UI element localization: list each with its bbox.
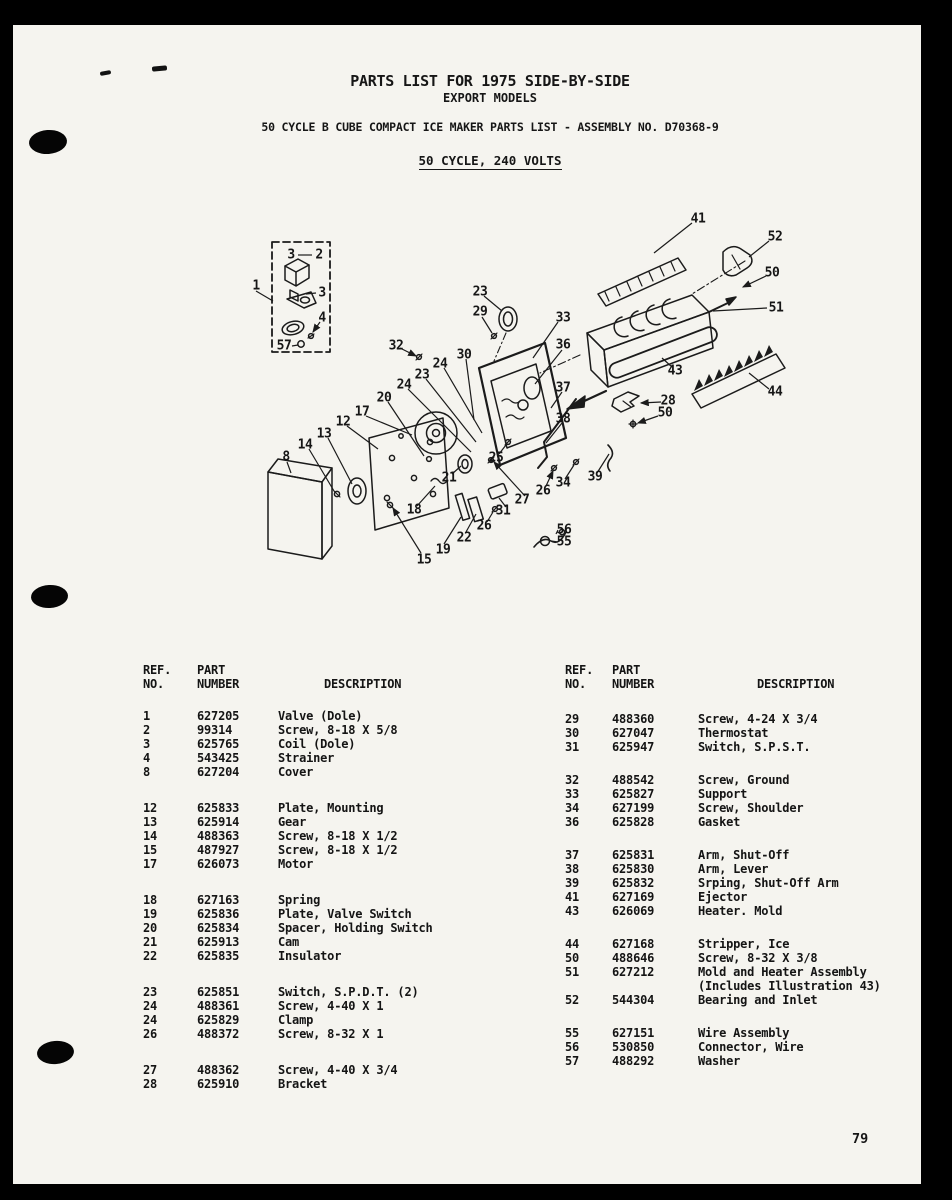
- table-group: 1627205Valve (Dole)299314Screw, 8-18 X 5…: [143, 709, 433, 779]
- table-row: 4543425Strainer: [143, 751, 433, 765]
- part-description: (Includes Illustration 43): [698, 979, 881, 993]
- ref-no: 12: [143, 801, 197, 815]
- diagram-callout-50: 50: [658, 406, 673, 421]
- col-header-description: DESCRIPTION: [698, 677, 834, 691]
- col-header-ref: REF.: [565, 663, 612, 677]
- diagram-callout-20: 20: [377, 391, 392, 406]
- part-number: 488361: [197, 999, 278, 1013]
- part-description: Wire Assembly: [698, 1026, 789, 1040]
- page-title: PARTS LIST FOR 1975 SIDE-BY-SIDE: [28, 72, 952, 91]
- part-number: 627199: [612, 801, 698, 815]
- ref-no: 3: [143, 737, 197, 751]
- table-row: 31625947Switch, S.P.S.T.: [565, 740, 881, 754]
- diagram-callout-3: 3: [318, 286, 325, 301]
- part-number: 625828: [612, 815, 698, 829]
- part-number: 488646: [612, 951, 698, 965]
- table-row: 39625832Srping, Shut-Off Arm: [565, 876, 881, 890]
- table-row: 12625833Plate, Mounting: [143, 801, 433, 815]
- table-row: 18627163Spring: [143, 893, 433, 907]
- part-description: Plate, Valve Switch: [278, 907, 411, 921]
- part-number: 488372: [197, 1027, 278, 1041]
- table-row: 23625851Switch, S.P.D.T. (2): [143, 985, 433, 999]
- scan-border-right: [921, 0, 952, 1200]
- part-number: 488363: [197, 829, 278, 843]
- ref-no: 29: [565, 712, 612, 726]
- table-group: 44627168Stripper, Ice50488646Screw, 8-32…: [565, 937, 881, 1007]
- table-row: 36625828Gasket: [565, 815, 881, 829]
- part-number: 625830: [612, 862, 698, 876]
- part-description: Screw, Shoulder: [698, 801, 803, 815]
- part-number: 625836: [197, 907, 278, 921]
- ref-no: 21: [143, 935, 197, 949]
- table-row: 14488363Screw, 8-18 X 1/2: [143, 829, 433, 843]
- col-header-no: NO.: [565, 677, 612, 691]
- part-description: Screw, 8-18 X 1/2: [278, 843, 397, 857]
- part-description: Connector, Wire: [698, 1040, 803, 1054]
- part-number: 627205: [197, 709, 278, 723]
- part-description: Stripper, Ice: [698, 937, 789, 951]
- ref-no: 41: [565, 890, 612, 904]
- diagram-callout-25: 25: [489, 451, 504, 466]
- diagram-callout-50: 50: [765, 266, 780, 281]
- diagram-callout-24: 24: [433, 357, 448, 372]
- ref-no: 39: [565, 876, 612, 890]
- col-header-ref: REF.: [143, 663, 197, 677]
- diagram-callout-1: 1: [252, 279, 260, 294]
- part-description: Coil (Dole): [278, 737, 355, 751]
- part-number: 99314: [197, 723, 278, 737]
- part-description: Switch, S.P.S.T.: [698, 740, 810, 754]
- part-number: 627163: [197, 893, 278, 907]
- table-group: 32488542Screw, Ground33625827Support3462…: [565, 773, 881, 829]
- ref-no: 50: [565, 951, 612, 965]
- part-description: Washer: [698, 1054, 740, 1068]
- table-group: 18627163Spring19625836Plate, Valve Switc…: [143, 893, 433, 963]
- table-group: 27488362Screw, 4-40 X 3/428625910Bracket: [143, 1063, 433, 1091]
- part-number: 627047: [612, 726, 698, 740]
- voltage-line: 50 CYCLE, 240 VOLTS: [419, 153, 562, 170]
- ref-no: 15: [143, 843, 197, 857]
- part-number: 625947: [612, 740, 698, 754]
- title-block: PARTS LIST FOR 1975 SIDE-BY-SIDE EXPORT …: [28, 72, 952, 170]
- table-row: 32488542Screw, Ground: [565, 773, 881, 787]
- part-description: Cam: [278, 935, 299, 949]
- part-number: 488360: [612, 712, 698, 726]
- part-description: Plate, Mounting: [278, 801, 383, 815]
- ref-no: 55: [565, 1026, 612, 1040]
- part-description: Spring: [278, 893, 320, 907]
- part-description: Screw, 4-40 X 3/4: [278, 1063, 397, 1077]
- ref-no: 24: [143, 1013, 197, 1027]
- table-row: 43626069Heater. Mold: [565, 904, 881, 918]
- part-description: Bracket: [278, 1077, 327, 1091]
- diagram-callout-13: 13: [317, 427, 332, 442]
- part-number: 625832: [612, 876, 698, 890]
- diagram-leader-lines: [256, 223, 769, 553]
- part-description: Motor: [278, 857, 313, 871]
- col-header-description: DESCRIPTION: [278, 677, 401, 691]
- parts-table-left: REF.PARTNO.NUMBERDESCRIPTION1627205Valve…: [143, 663, 433, 1113]
- part-description: Screw, 8-18 X 5/8: [278, 723, 397, 737]
- diagram-callout-52: 52: [768, 230, 783, 245]
- diagram-callout-19: 19: [436, 543, 451, 558]
- part-number: 488292: [612, 1054, 698, 1068]
- table-row: 3625765Coil (Dole): [143, 737, 433, 751]
- part-number: 626069: [612, 904, 698, 918]
- ref-no: 30: [565, 726, 612, 740]
- table-row: 24625829Clamp: [143, 1013, 433, 1027]
- diagram-callout-37: 37: [556, 381, 571, 396]
- diagram-callout-23: 23: [415, 368, 430, 383]
- scanned-document-page: PARTS LIST FOR 1975 SIDE-BY-SIDE EXPORT …: [0, 0, 952, 1200]
- table-row: 27488362Screw, 4-40 X 3/4: [143, 1063, 433, 1077]
- part-description: Clamp: [278, 1013, 313, 1027]
- ref-no: 37: [565, 848, 612, 862]
- part-number: 488362: [197, 1063, 278, 1077]
- ref-no: 34: [565, 801, 612, 815]
- diagram-callout-21: 21: [442, 471, 457, 486]
- col-header-part: PART: [197, 663, 278, 677]
- diagram-callout-22: 22: [457, 531, 472, 546]
- part-description: Heater. Mold: [698, 904, 782, 918]
- diagram-callout-56: 56: [557, 523, 572, 538]
- diagram-callout-18: 18: [407, 503, 422, 518]
- col-header-number: NUMBER: [197, 677, 278, 691]
- diagram-callout-31: 31: [496, 504, 511, 519]
- table-header: REF.PARTNO.NUMBERDESCRIPTION: [565, 663, 881, 691]
- table-group: 37625831Arm, Shut-Off38625830Arm, Lever3…: [565, 848, 881, 918]
- table-row: 29488360Screw, 4-24 X 3/4: [565, 712, 881, 726]
- diagram-callout-17: 17: [355, 405, 370, 420]
- table-row: 15487927Screw, 8-18 X 1/2: [143, 843, 433, 857]
- part-description: Gasket: [698, 815, 740, 829]
- col-header-no: NO.: [143, 677, 197, 691]
- part-number: 627169: [612, 890, 698, 904]
- ref-no: 52: [565, 993, 612, 1007]
- diagram-callout-41: 41: [691, 212, 706, 227]
- table-row: 299314Screw, 8-18 X 5/8: [143, 723, 433, 737]
- col-header-number: NUMBER: [612, 677, 698, 691]
- part-description: Support: [698, 787, 747, 801]
- table-row: 24488361Screw, 4-40 X 1: [143, 999, 433, 1013]
- diagram-callout-44: 44: [768, 385, 783, 400]
- diagram-callout-33: 33: [556, 311, 571, 326]
- ref-no: 38: [565, 862, 612, 876]
- diagram-callout-57: 57: [277, 339, 292, 354]
- ref-no: 43: [565, 904, 612, 918]
- table-row-continuation: (Includes Illustration 43): [565, 979, 881, 993]
- table-row: 38625830Arm, Lever: [565, 862, 881, 876]
- ref-no: 17: [143, 857, 197, 871]
- table-row: 34627199Screw, Shoulder: [565, 801, 881, 815]
- part-number: 625851: [197, 985, 278, 999]
- ref-no: 13: [143, 815, 197, 829]
- diagram-callout-2: 2: [315, 248, 322, 263]
- diagram-callout-51: 51: [769, 301, 784, 316]
- table-row: 56530850Connector, Wire: [565, 1040, 881, 1054]
- part-description: Arm, Lever: [698, 862, 768, 876]
- table-group: 29488360Screw, 4-24 X 3/430627047Thermos…: [565, 712, 881, 754]
- part-number: 487927: [197, 843, 278, 857]
- ref-no: 33: [565, 787, 612, 801]
- col-header-part: PART: [612, 663, 698, 677]
- table-row: 28625910Bracket: [143, 1077, 433, 1091]
- part-description: Screw, 8-18 X 1/2: [278, 829, 397, 843]
- diagram-callout-34: 34: [556, 476, 571, 491]
- part-number: 530850: [612, 1040, 698, 1054]
- ref-no: 1: [143, 709, 197, 723]
- table-row: 55627151Wire Assembly: [565, 1026, 881, 1040]
- diagram-callout-14: 14: [298, 438, 313, 453]
- part-description: Cover: [278, 765, 313, 779]
- diagram-callout-36: 36: [556, 338, 571, 353]
- ref-no: 56: [565, 1040, 612, 1054]
- ref-no: 20: [143, 921, 197, 935]
- part-number: 625829: [197, 1013, 278, 1027]
- table-row: 22625835Insulator: [143, 949, 433, 963]
- scan-border-bottom: [0, 1184, 952, 1200]
- diagram-callout-3: 3: [287, 248, 294, 263]
- table-row: 1627205Valve (Dole): [143, 709, 433, 723]
- part-description: Screw, 8-32 X 3/8: [698, 951, 817, 965]
- part-number: 625833: [197, 801, 278, 815]
- ref-no: 8: [143, 765, 197, 779]
- part-number: 625827: [612, 787, 698, 801]
- table-header-row: REF.PART: [143, 663, 433, 677]
- table-row: 30627047Thermostat: [565, 726, 881, 740]
- diagram-callout-8: 8: [282, 450, 290, 465]
- part-number: 626073: [197, 857, 278, 871]
- ref-no: 2: [143, 723, 197, 737]
- table-row: 8627204Cover: [143, 765, 433, 779]
- assembly-line: 50 CYCLE B CUBE COMPACT ICE MAKER PARTS …: [28, 120, 952, 135]
- part-number: 625835: [197, 949, 278, 963]
- part-description: Valve (Dole): [278, 709, 362, 723]
- part-number: 627151: [612, 1026, 698, 1040]
- table-header-row: NO.NUMBERDESCRIPTION: [143, 677, 433, 691]
- part-description: Screw, 8-32 X 1: [278, 1027, 383, 1041]
- part-description: Screw, 4-40 X 1: [278, 999, 383, 1013]
- diagram-callout-26: 26: [477, 519, 492, 534]
- part-description: Srping, Shut-Off Arm: [698, 876, 839, 890]
- table-row: 26488372Screw, 8-32 X 1: [143, 1027, 433, 1041]
- ref-no: 23: [143, 985, 197, 999]
- part-description: Spacer, Holding Switch: [278, 921, 433, 935]
- part-description: Screw, Ground: [698, 773, 789, 787]
- diagram-callout-23: 23: [473, 285, 488, 300]
- part-description: Switch, S.P.D.T. (2): [278, 985, 419, 999]
- part-number: 625831: [612, 848, 698, 862]
- part-description: Mold and Heater Assembly: [698, 965, 867, 979]
- table-row: 37625831Arm, Shut-Off: [565, 848, 881, 862]
- ref-no: 31: [565, 740, 612, 754]
- ref-no: 22: [143, 949, 197, 963]
- diagram-callout-38: 38: [556, 412, 571, 427]
- table-row: 57488292Washer: [565, 1054, 881, 1068]
- part-number: 625765: [197, 737, 278, 751]
- table-row: 20625834Spacer, Holding Switch: [143, 921, 433, 935]
- diagram-callout-32: 32: [389, 339, 404, 354]
- diagram-callout-30: 30: [457, 348, 472, 363]
- table-group: 55627151Wire Assembly56530850Connector, …: [565, 1026, 881, 1068]
- part-number: 627204: [197, 765, 278, 779]
- scan-border-left: [0, 0, 13, 1200]
- table-row: 50488646Screw, 8-32 X 3/8: [565, 951, 881, 965]
- table-row: 17626073Motor: [143, 857, 433, 871]
- table-group: 23625851Switch, S.P.D.T. (2)24488361Scre…: [143, 985, 433, 1041]
- ref-no: 28: [143, 1077, 197, 1091]
- part-description: Bearing and Inlet: [698, 993, 817, 1007]
- table-row: 19625836Plate, Valve Switch: [143, 907, 433, 921]
- part-description: Screw, 4-24 X 3/4: [698, 712, 817, 726]
- diagram-linework: [268, 242, 785, 559]
- ref-no: 44: [565, 937, 612, 951]
- ref-no: 4: [143, 751, 197, 765]
- ref-no: 27: [143, 1063, 197, 1077]
- ref-no: 32: [565, 773, 612, 787]
- scan-border-top: [0, 0, 952, 25]
- diagram-callout-39: 39: [588, 470, 603, 485]
- diagram-callout-43: 43: [668, 364, 683, 379]
- ref-no: 19: [143, 907, 197, 921]
- table-header-row: REF.PART: [565, 663, 881, 677]
- part-number: 625910: [197, 1077, 278, 1091]
- ref-no: 36: [565, 815, 612, 829]
- part-number: 488542: [612, 773, 698, 787]
- ref-no: 51: [565, 965, 612, 979]
- ref-no: 18: [143, 893, 197, 907]
- parts-table-right: REF.PARTNO.NUMBERDESCRIPTION29488360Scre…: [565, 663, 881, 1087]
- diagram-callout-26: 26: [536, 484, 551, 499]
- table-row: 21625913Cam: [143, 935, 433, 949]
- table-row: 51627212Mold and Heater Assembly: [565, 965, 881, 979]
- diagram-callout-27: 27: [515, 493, 530, 508]
- page-subtitle-models: EXPORT MODELS: [28, 91, 952, 106]
- table-row: 52544304Bearing and Inlet: [565, 993, 881, 1007]
- part-description: Thermostat: [698, 726, 768, 740]
- table-row: 44627168Stripper, Ice: [565, 937, 881, 951]
- ref-no: 24: [143, 999, 197, 1013]
- part-number: 627168: [612, 937, 698, 951]
- diagram-callout-12: 12: [336, 415, 351, 430]
- diagram-callout-4: 4: [318, 311, 326, 326]
- part-description: Strainer: [278, 751, 334, 765]
- ref-no: 14: [143, 829, 197, 843]
- part-description: Ejector: [698, 890, 747, 904]
- diagram-callout-29: 29: [473, 305, 488, 320]
- part-number: 544304: [612, 993, 698, 1007]
- ref-no: 26: [143, 1027, 197, 1041]
- diagram-callout-15: 15: [417, 553, 432, 568]
- part-description: Insulator: [278, 949, 341, 963]
- table-row: 13625914Gear: [143, 815, 433, 829]
- table-row: 33625827Support: [565, 787, 881, 801]
- exploded-parts-diagram: 1323457812131415171819202122232324242526…: [240, 195, 800, 585]
- page-number: 79: [852, 1131, 868, 1147]
- part-description: Gear: [278, 815, 306, 829]
- part-description: Arm, Shut-Off: [698, 848, 789, 862]
- part-number: 625913: [197, 935, 278, 949]
- table-header-row: NO.NUMBERDESCRIPTION: [565, 677, 881, 691]
- table-row: 41627169Ejector: [565, 890, 881, 904]
- part-number: 627212: [612, 965, 698, 979]
- table-header: REF.PARTNO.NUMBERDESCRIPTION: [143, 663, 433, 691]
- part-number: 543425: [197, 751, 278, 765]
- table-group: 12625833Plate, Mounting13625914Gear14488…: [143, 801, 433, 871]
- part-number: 625914: [197, 815, 278, 829]
- part-number: 625834: [197, 921, 278, 935]
- ref-no: 57: [565, 1054, 612, 1068]
- diagram-callout-24: 24: [397, 378, 412, 393]
